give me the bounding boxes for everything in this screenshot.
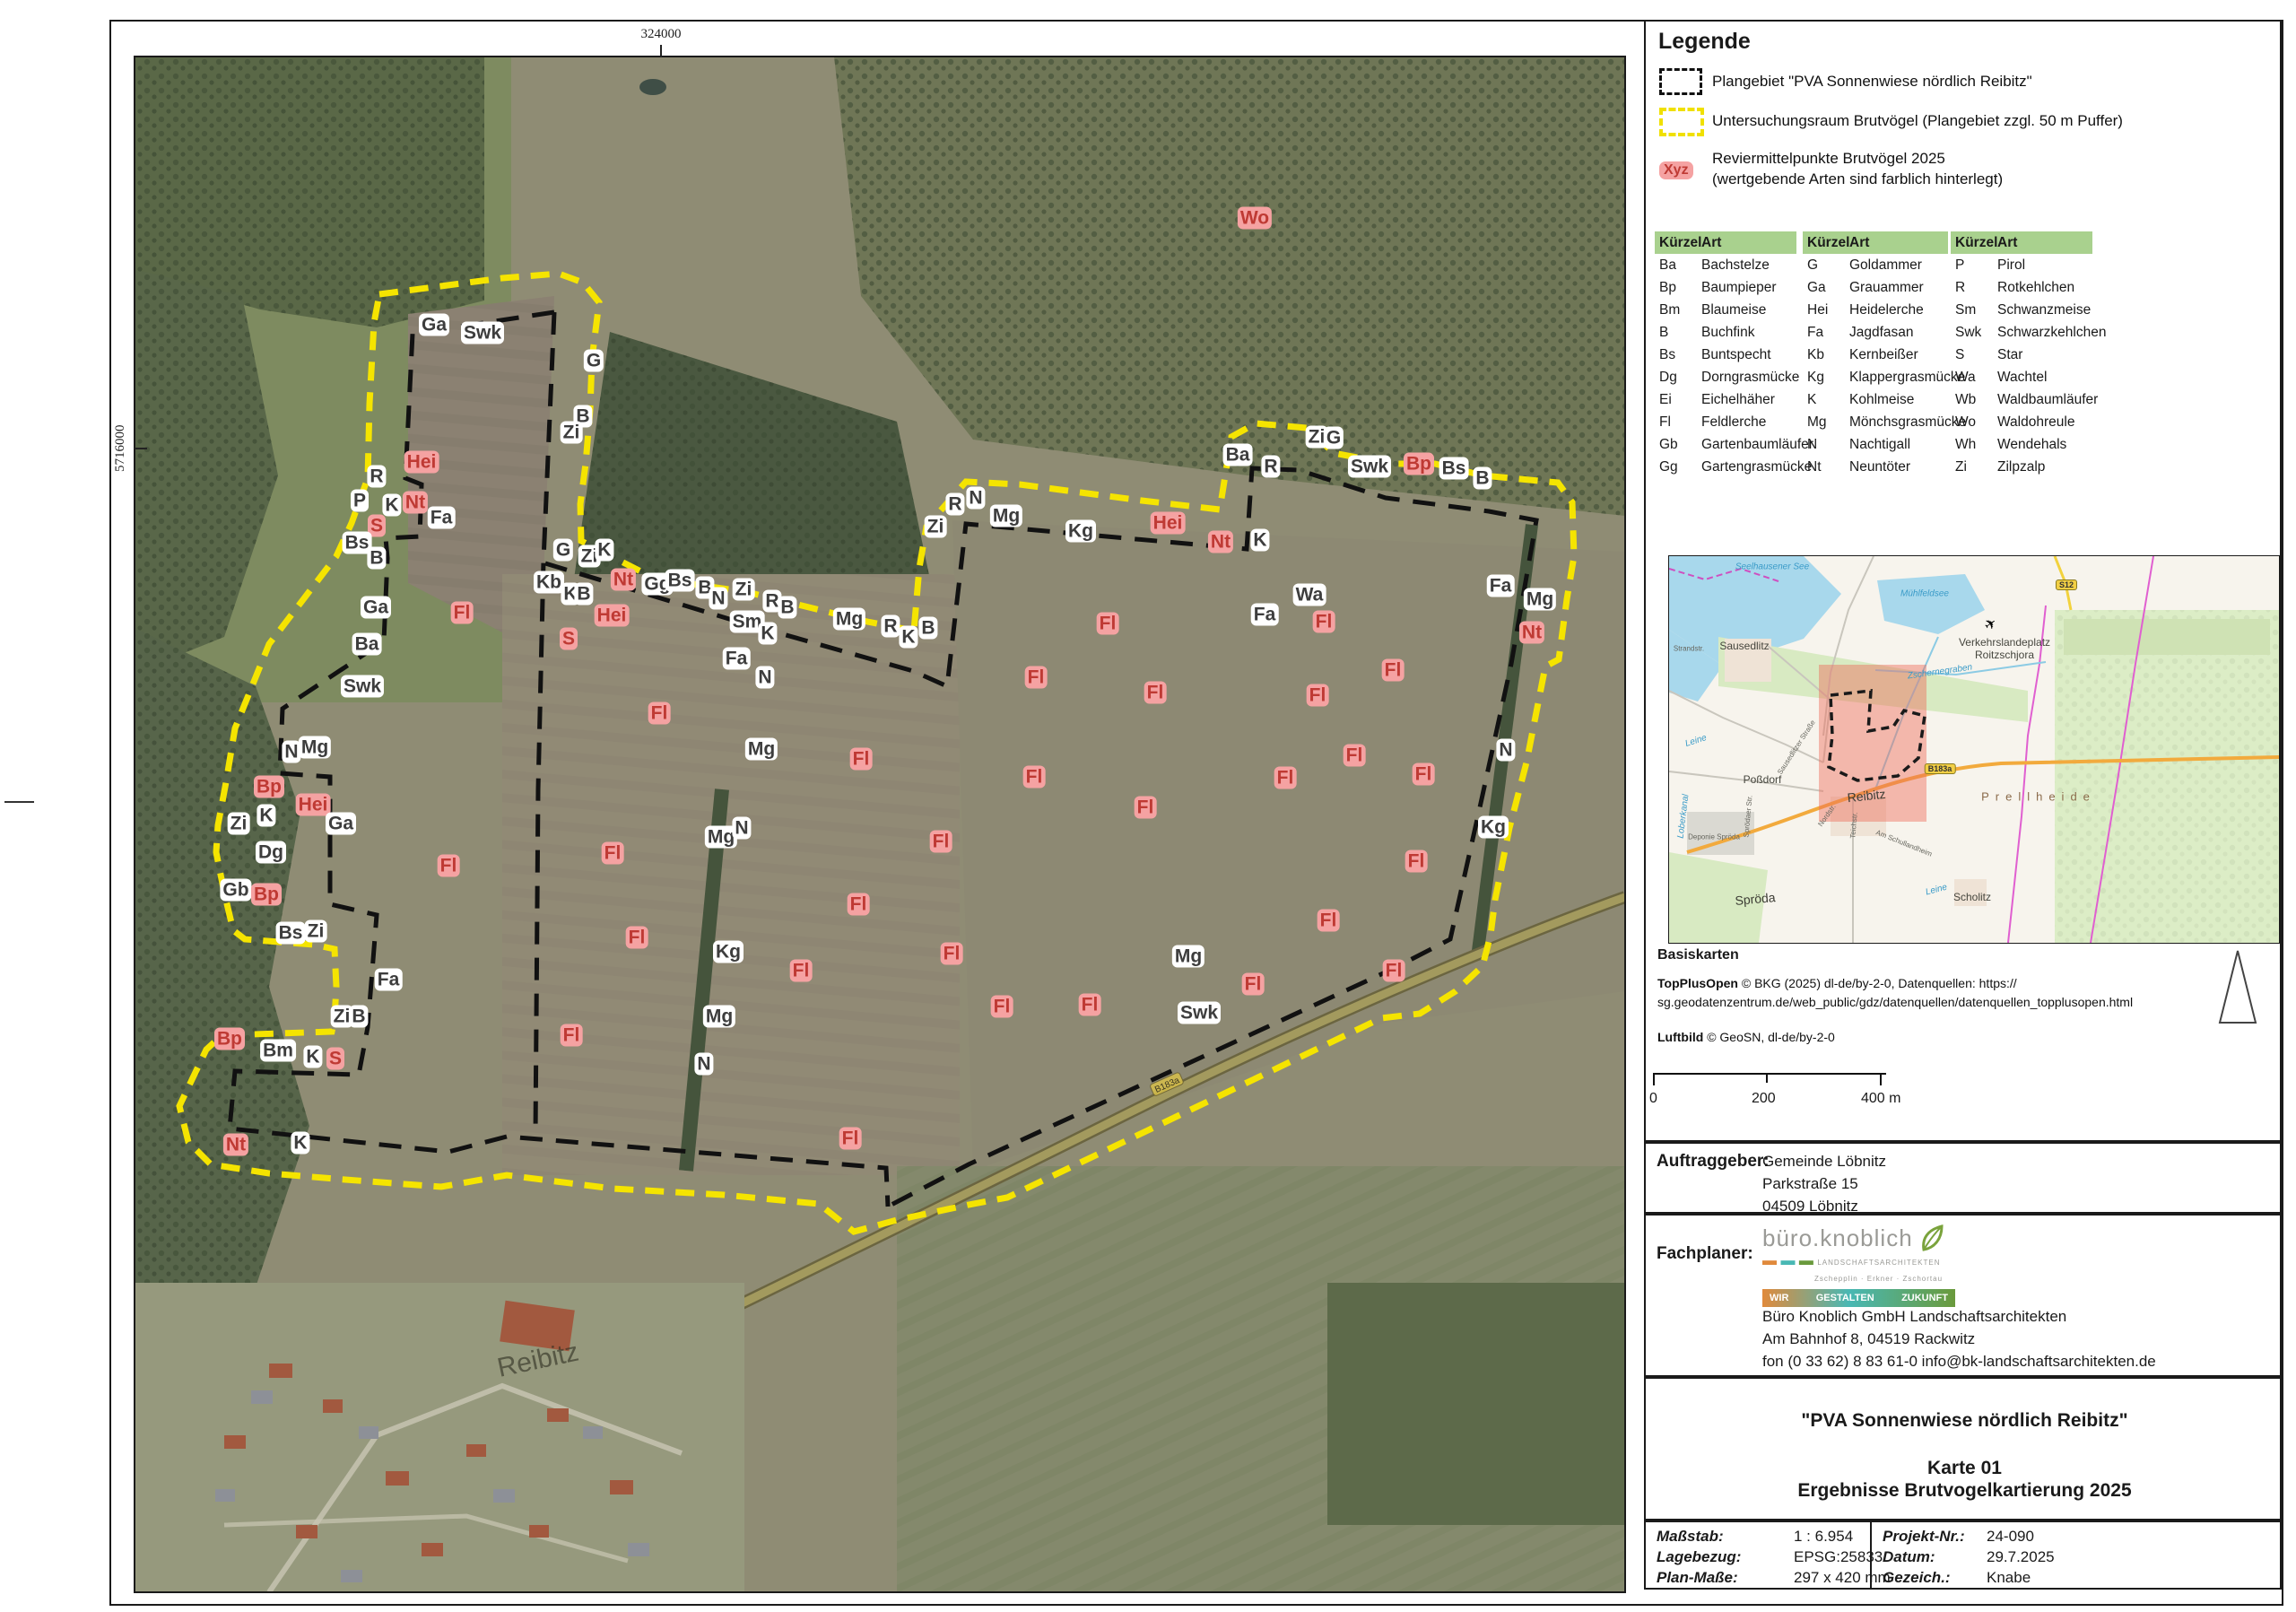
basiskarten-luftbild: Luftbild © GeoSN, dl-de/by-2-0 [1657, 1028, 1835, 1047]
map-sheet: Reibitz B183a WoGaSwkGBZiRHeiPKNtFaSBsBG… [0, 0, 2296, 1612]
untersuchungsraum-swatch [1659, 108, 1704, 136]
species-row: WoWaldohreule [1951, 411, 2092, 433]
inset-place-label: Seelhausener See [1735, 562, 1809, 572]
legend-panel: Legende Plangebiet "PVA Sonnenwiese nörd… [1644, 20, 2282, 1142]
species-row: DgDorngrasmücke [1655, 366, 1796, 388]
species-row: SStar [1951, 344, 2092, 366]
species-row: BpBaumpieper [1655, 276, 1796, 299]
species-row: FlFeldlerche [1655, 411, 1796, 433]
species-table-3: KürzelArtPPirolRRotkehlchenSmSchwanzmeis… [1951, 231, 2092, 478]
species-row: ZiZilpzalp [1951, 456, 2092, 478]
inset-place-label: Poßdorf [1744, 773, 1782, 786]
species-row: SmSchwanzmeise [1951, 299, 2092, 321]
planner-label: Fachplaner: [1657, 1244, 1753, 1264]
map-number: Karte 01 [1646, 1458, 2283, 1479]
species-row: EiEichelhäher [1655, 388, 1796, 411]
species-row: PPirol [1951, 254, 2092, 276]
inset-place-label: Scholitz [1953, 891, 1991, 903]
species-row: NtNeuntöter [1803, 456, 1948, 478]
inset-overview-map: ✈ Seelhausener SeeMühlfeldseeSausedlitzS… [1668, 555, 2280, 944]
species-row: GbGartenbaumläufer [1655, 433, 1796, 456]
scale-label-200: 200 [1752, 1091, 1776, 1107]
inset-place-label: Sausedlitzer Straße [1776, 719, 1817, 776]
legend-item-revier-line1: Reviermittelpunkte Brutvögel 2025 [1712, 150, 1945, 168]
species-row: WbWaldbaumläufer [1951, 388, 2092, 411]
revier-marker-swatch: Xyz [1659, 161, 1693, 179]
planner-logo: büro.knoblich ▬ ▬ ▬ LANDSCHAFTSARCHITEKT… [1762, 1223, 1955, 1307]
planner-address: Büro Knoblich GmbH Landschaftsarchitekte… [1762, 1305, 2156, 1372]
grid-tick-top [660, 45, 662, 57]
meta-massstab-value: 1 : 6.954 [1794, 1528, 1853, 1546]
inset-place-label: S12 [2056, 579, 2077, 590]
scale-label-0: 0 [1649, 1091, 1657, 1107]
species-row: BmBlaumeise [1655, 299, 1796, 321]
legend-item-plangebiet: Plangebiet "PVA Sonnenwiese nördlich Rei… [1712, 73, 2032, 91]
meta-box: Maßstab: 1 : 6.954 Lagebezug: EPSG:25833… [1644, 1521, 2282, 1590]
plangebiet-swatch [1659, 68, 1702, 95]
map-subtitle: Ergebnisse Brutvogelkartierung 2025 [1646, 1480, 2283, 1502]
inset-place-label: Leine [1684, 733, 1709, 749]
inset-place-label: Roitzschjora [1975, 649, 2034, 661]
inset-place-label: Sprödaer Str. [1742, 795, 1753, 838]
species-row: MgMönchsgrasmücke [1803, 411, 1948, 433]
inset-place-label: Strandstr. [1674, 645, 1704, 653]
meta-lagebezug-value: EPSG:25833 [1794, 1548, 1883, 1566]
meta-projektnr-value: 24-090 [1987, 1528, 2034, 1546]
species-row: WhWendehals [1951, 433, 2092, 456]
species-row: FaJagdfasan [1803, 321, 1948, 344]
grid-tick-left [135, 448, 147, 449]
meta-massstab-label: Maßstab: [1657, 1528, 1724, 1546]
species-row: BaBachstelze [1655, 254, 1796, 276]
inset-place-label: Zschernegraben [1907, 662, 1973, 681]
inset-place-label: Mühlfeldsee [1900, 589, 1949, 599]
north-arrow-icon [2211, 947, 2265, 1028]
inset-place-label: B183a [1925, 763, 1956, 774]
species-row: SwkSchwarzkehlchen [1951, 321, 2092, 344]
inset-place-label: Reibitz [1847, 787, 1886, 805]
planner-box: Fachplaner: büro.knoblich ▬ ▬ ▬ LANDSCHA… [1644, 1214, 2282, 1377]
client-label: Auftraggeber: [1657, 1152, 1770, 1172]
meta-planmasse-value: 297 x 420 mm [1794, 1569, 1891, 1587]
scale-bar [1653, 1073, 1886, 1087]
species-table-header: KürzelArt [1803, 231, 1948, 254]
legend-title: Legende [1658, 29, 1751, 55]
plan-title: "PVA Sonnenwiese nördlich Reibitz" [1646, 1410, 2283, 1432]
inset-place-label: Verkehrslandeplatz [1959, 636, 2050, 649]
species-table-header: KürzelArt [1655, 231, 1796, 254]
inset-place-label: Teichstr. [1848, 812, 1859, 839]
species-row: NNachtigall [1803, 433, 1948, 456]
grid-coordinate-left: 5716000 [113, 395, 131, 502]
species-row: BsBuntspecht [1655, 344, 1796, 366]
inset-place-label: Nordstr. [1816, 803, 1837, 828]
client-address: Gemeinde Löbnitz Parkstraße 15 04509 Löb… [1762, 1150, 1886, 1217]
scale-label-400: 400 m [1861, 1091, 1900, 1107]
basiskarten-heading: Basiskarten [1657, 947, 1739, 963]
inset-place-label: Prellheide [1981, 790, 2096, 804]
inset-place-label: Am Schullandheim [1874, 828, 1933, 858]
species-row: GGoldammer [1803, 254, 1948, 276]
meta-planmasse-label: Plan-Maße: [1657, 1569, 1738, 1587]
species-row: KbKernbeißer [1803, 344, 1948, 366]
legend-item-revier-line2: (wertgebende Arten sind farblich hinterl… [1712, 170, 2003, 188]
logo-wordmark: büro.knoblich [1762, 1224, 1913, 1251]
species-row: GgGartengrasmücke [1655, 456, 1796, 478]
meta-projektnr-label: Projekt-Nr.: [1883, 1528, 1965, 1546]
title-box: "PVA Sonnenwiese nördlich Reibitz" Karte… [1644, 1377, 2282, 1521]
meta-lagebezug-label: Lagebezug: [1657, 1548, 1741, 1566]
meta-gezeichnet-label: Gezeich.: [1883, 1569, 1951, 1587]
species-table-header: KürzelArt [1951, 231, 2092, 254]
meta-datum-value: 29.7.2025 [1987, 1548, 2055, 1566]
species-row: KKohlmeise [1803, 388, 1948, 411]
basiskarten-topplus: TopPlusOpen © BKG (2025) dl-de/by-2-0, D… [1657, 974, 2160, 1012]
inset-place-label: Spröda [1735, 890, 1776, 908]
grid-tick-outside [4, 801, 34, 803]
species-row: GaGrauammer [1803, 276, 1948, 299]
inset-place-label: Deponie Spröda [1688, 833, 1740, 841]
species-table-2: KürzelArtGGoldammerGaGrauammerHeiHeidele… [1803, 231, 1948, 478]
logo-slogan-bar: WIRGESTALTENZUKUNFT [1762, 1289, 1955, 1307]
inset-place-label: Leine [1925, 883, 1948, 898]
species-row: KgKlappergrasmücke [1803, 366, 1948, 388]
client-box: Auftraggeber: Gemeinde Löbnitz Parkstraß… [1644, 1142, 2282, 1214]
species-row: RRotkehlchen [1951, 276, 2092, 299]
leaf-icon [1917, 1223, 1947, 1253]
meta-datum-label: Datum: [1883, 1548, 1935, 1566]
inset-place-label: Sausedlitz [1719, 640, 1769, 652]
legend-item-untersuchungsraum: Untersuchungsraum Brutvögel (Plangebiet … [1712, 112, 2123, 130]
species-table-1: KürzelArtBaBachstelzeBpBaumpieperBmBlaum… [1655, 231, 1796, 478]
grid-coordinate-top: 324000 [616, 27, 706, 42]
species-row: HeiHeidelerche [1803, 299, 1948, 321]
species-row: BBuchfink [1655, 321, 1796, 344]
meta-gezeichnet-value: Knabe [1987, 1569, 2031, 1587]
species-row: WaWachtel [1951, 366, 2092, 388]
